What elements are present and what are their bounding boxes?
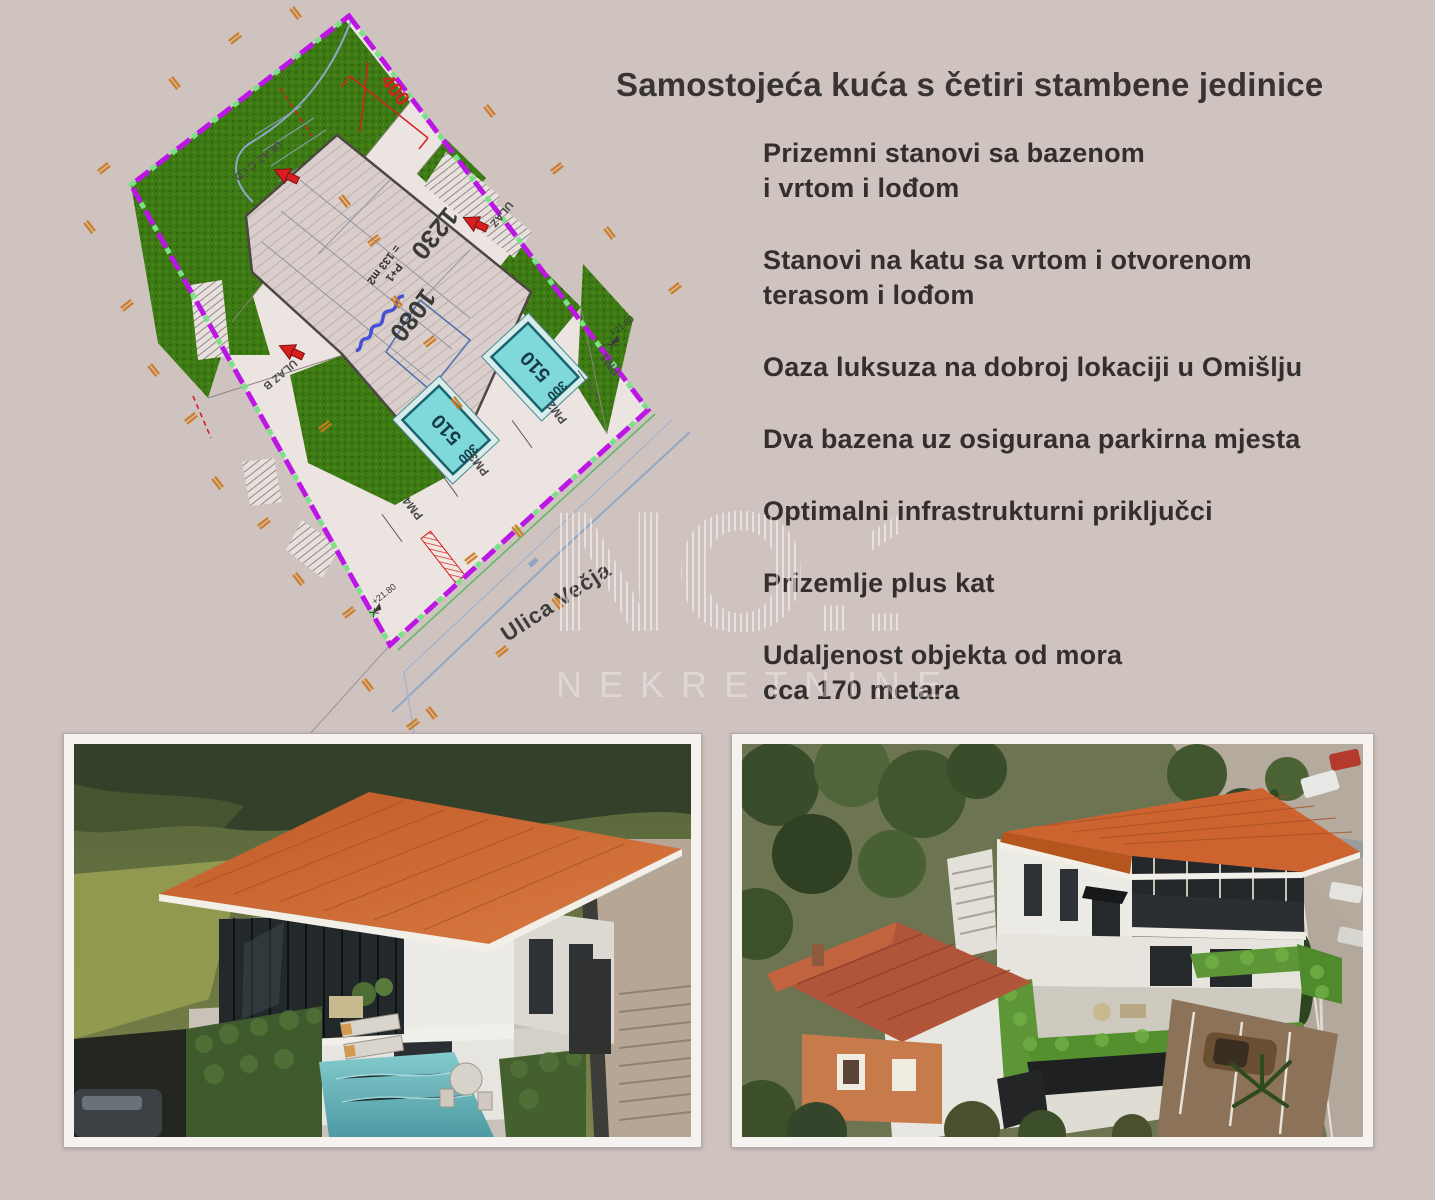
feature-item: Prizemlje plus kat bbox=[763, 566, 1403, 601]
feature-item: Prizemni stanovi sa bazenom i vrtom i lo… bbox=[763, 136, 1403, 206]
feature-item: Udaljenost objekta od mora cca 170 metar… bbox=[763, 638, 1403, 708]
feature-item: Optimalni infrastrukturni priključci bbox=[763, 494, 1403, 529]
site-plan: 510 300 510 300 bbox=[0, 0, 705, 760]
flyer-page: 510 300 510 300 bbox=[0, 0, 1435, 1200]
street-label: Ulica Večja bbox=[496, 557, 615, 647]
feature-item: Oaza luksuza na dobroj lokaciji u Omišlj… bbox=[763, 350, 1403, 385]
page-title: Samostojeća kuća s četiri stambene jedin… bbox=[616, 66, 1406, 104]
render-photo-aerial-view bbox=[731, 733, 1374, 1148]
feature-item: Dva bazena uz osigurana parkirna mjesta bbox=[763, 422, 1403, 457]
render-pool-view-art bbox=[74, 744, 691, 1137]
feature-list: Prizemni stanovi sa bazenom i vrtom i lo… bbox=[763, 136, 1403, 745]
feature-item: Stanovi na katu sa vrtom i otvorenom ter… bbox=[763, 243, 1403, 313]
render-aerial-view-art bbox=[742, 744, 1363, 1137]
render-photo-pool-view bbox=[63, 733, 702, 1148]
